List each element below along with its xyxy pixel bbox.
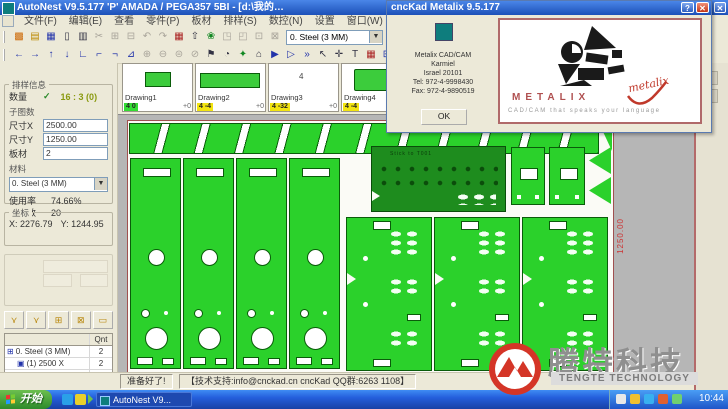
- toolbar-icon[interactable]: ▥: [75, 30, 91, 44]
- nest-actions: ⋎⋎⊞⊠▭: [4, 311, 113, 329]
- part-hole: [304, 327, 327, 350]
- size-x-input[interactable]: 2500.00: [43, 119, 108, 132]
- part-hole: [194, 309, 203, 318]
- thumbnail-name: Drawing1: [125, 93, 157, 102]
- row-qnt: 2: [89, 358, 112, 369]
- part-hole: [565, 230, 597, 257]
- part-hole: [461, 359, 479, 367]
- nested-part[interactable]: [183, 158, 234, 369]
- taskbar-clock: 10:44: [699, 393, 724, 404]
- metalix-tagline: CAD/CAM that speaks your language: [508, 108, 661, 114]
- part-hole: [407, 314, 421, 321]
- windows-flag-icon: [6, 395, 10, 399]
- part-hole: [565, 330, 597, 348]
- toolbar-icon[interactable]: ↷: [155, 30, 171, 44]
- group-title: 坐标: [9, 207, 32, 219]
- part-hole: [373, 221, 391, 230]
- disabled-input: [80, 274, 109, 287]
- taskbar: 开始 AutoNest V9... 10:44: [0, 390, 728, 409]
- toolbar-icon[interactable]: ▩: [11, 30, 27, 44]
- part-hole: [389, 278, 421, 296]
- menu-item[interactable]: 设置: [309, 15, 341, 28]
- part-hole: [520, 168, 538, 180]
- toolbar-icon[interactable]: ↓: [59, 48, 75, 62]
- part-hole: [270, 311, 274, 315]
- toolbar-icon[interactable]: ∟: [75, 48, 91, 62]
- disabled-options-group: [4, 254, 113, 306]
- part-label: Stick to T001: [390, 151, 432, 157]
- part-hole: [373, 359, 391, 367]
- system-tray: 10:44: [609, 390, 728, 409]
- toolbar-icon[interactable]: ⊖: [155, 48, 171, 62]
- part-hole: [583, 314, 597, 321]
- quicklaunch-desktop-icon[interactable]: [75, 394, 86, 405]
- table-row[interactable]: ▣(1) 2500 X 2: [5, 358, 112, 370]
- tray-icon[interactable]: [658, 394, 668, 404]
- about-dialog: cncKad Metalix 9.5.177 ? ✕ Metalix CAD/C…: [386, 0, 712, 133]
- material-label: 材料: [9, 163, 108, 175]
- task-label: AutoNest V9...: [113, 395, 171, 405]
- part-hole: [435, 273, 444, 285]
- menu-item[interactable]: 数控(N): [263, 15, 309, 28]
- toolbar-icon[interactable]: ⊿: [123, 48, 139, 62]
- menu-item[interactable]: 排样(S): [217, 15, 262, 28]
- metalix-logo-box: METALIX metalix CAD/CAM that speaks your…: [498, 18, 702, 124]
- subdrawings-label: 子图数: [9, 106, 108, 118]
- taskbar-task-autonest[interactable]: AutoNest V9...: [96, 392, 192, 407]
- row-qnt: 2: [89, 346, 112, 357]
- nest-action-button[interactable]: ▭: [93, 311, 113, 329]
- nested-part[interactable]: [236, 158, 287, 369]
- about-titlebar: cncKad Metalix 9.5.177 ? ✕: [387, 1, 711, 15]
- toolbar-icon[interactable]: ▷: [283, 48, 299, 62]
- nest-info-group: 排样信息 数量 ✓ 16 : 3 (0) 子图数 尺寸X2500.00 尺寸Y1…: [4, 84, 113, 204]
- part-hole: [477, 330, 509, 348]
- toolbar-grip[interactable]: [3, 31, 8, 43]
- sheets-label: 板材: [9, 147, 43, 160]
- window-title: AutoNest V9.5.177 'P' AMADA / PEGA357 5B…: [17, 0, 284, 15]
- part-hole: [296, 357, 312, 365]
- part-hole: [477, 230, 509, 257]
- row-icon[interactable]: ▣: [17, 359, 25, 368]
- material-combobox[interactable]: 0. Steel (3 MM)▼: [286, 30, 383, 45]
- part-hole: [575, 195, 579, 199]
- quantity-label: 数量: [9, 90, 43, 103]
- drawing-thumbnail[interactable]: 4 Drawing3 4 -32 +0: [268, 63, 339, 112]
- document-icon: [2, 15, 14, 27]
- nested-part[interactable]: [346, 217, 432, 371]
- thumbnail-preview: [123, 64, 192, 94]
- toolbar-icon[interactable]: ¬: [107, 48, 123, 62]
- toolbar-icon[interactable]: ⚑: [203, 48, 219, 62]
- table-header: Qnt: [5, 334, 112, 346]
- toolbar-icon[interactable]: ⊞: [107, 30, 123, 44]
- menu-item[interactable]: 查看: [108, 15, 140, 28]
- row-label: (1) 2500 X: [27, 359, 64, 368]
- part-hole: [215, 358, 227, 365]
- drawing-thumbnail[interactable]: Drawing1 4 0 +0: [122, 63, 193, 112]
- company-name: Metalix CAD/CAM: [393, 51, 493, 60]
- part-hole: [523, 273, 532, 285]
- material-combobox-value: 0. Steel (3 MM): [290, 32, 348, 42]
- toolbar-icon[interactable]: »: [299, 48, 315, 62]
- start-button[interactable]: 开始: [0, 390, 52, 409]
- nested-part[interactable]: [589, 177, 611, 204]
- task-icon: [100, 396, 110, 406]
- quantity-badge: 4 -4: [197, 103, 213, 111]
- part-hole: [549, 359, 567, 367]
- toolbar-icon[interactable]: ⊟: [123, 30, 139, 44]
- part-hole: [517, 195, 521, 199]
- size-y-label: 尺寸Y: [9, 133, 43, 146]
- close-button[interactable]: ✕: [714, 2, 726, 13]
- part-hole: [148, 249, 165, 266]
- part-hole: [323, 311, 327, 315]
- metalix-brand: METALIX: [512, 92, 590, 103]
- nested-part[interactable]: [130, 158, 181, 369]
- chevron-down-icon[interactable]: ▼: [369, 31, 382, 43]
- sheet[interactable]: Stick to T001: [127, 120, 614, 373]
- part-hole: [477, 278, 509, 296]
- toolbar-icon[interactable]: ▯: [59, 30, 75, 44]
- menu-item[interactable]: 零件(P): [140, 15, 185, 28]
- quantity-badge: 4 -4: [343, 103, 359, 111]
- part-hole: [190, 357, 206, 365]
- part-hole: [535, 195, 539, 199]
- nested-part[interactable]: [522, 217, 608, 371]
- extra-badge: +0: [256, 103, 264, 111]
- tray-icon[interactable]: [644, 394, 654, 404]
- toolbar-icon[interactable]: ↶: [139, 30, 155, 44]
- disabled-input: [43, 274, 72, 287]
- tray-icon[interactable]: [630, 394, 640, 404]
- menu-item[interactable]: 窗口(W): [341, 15, 389, 28]
- check-icon: ✓: [43, 91, 51, 102]
- part-hole: [243, 357, 259, 365]
- toolbar-icon[interactable]: ↑: [43, 48, 59, 62]
- part-hole: [451, 302, 456, 307]
- toolbar-icon[interactable]: ↖: [315, 48, 331, 62]
- part-hole: [451, 256, 456, 261]
- quantity-badge: 4 -32: [270, 103, 290, 111]
- nested-part[interactable]: [549, 147, 585, 205]
- toolbar-icon[interactable]: ▤: [27, 30, 43, 44]
- part-hole: [141, 309, 150, 318]
- part-hole: [321, 358, 333, 365]
- screen: AutoNest V9.5.177 'P' AMADA / PEGA357 5B…: [0, 0, 728, 409]
- chevron-down-icon[interactable]: ▼: [94, 178, 107, 190]
- toolbar-icon[interactable]: ⊡: [251, 30, 267, 44]
- part-hole: [162, 358, 174, 365]
- utilization-value: 74.66%: [51, 196, 82, 206]
- coord-y-label: Y:: [61, 219, 69, 229]
- cnckad-icon: [435, 23, 453, 41]
- close-icon[interactable]: ✕: [696, 2, 709, 13]
- size-y-input[interactable]: 1250.00: [43, 133, 108, 146]
- part-hole: [380, 179, 498, 188]
- row-icon[interactable]: ⊞: [7, 347, 14, 356]
- coord-x-label: X:: [9, 219, 18, 229]
- part-hole: [300, 309, 309, 318]
- company-country: Israel 20101: [393, 69, 493, 78]
- thumbnail-name: Drawing2: [198, 93, 230, 102]
- thumbnail-preview: 4: [269, 64, 338, 94]
- part-hole: [461, 221, 479, 230]
- part-hole: [145, 327, 168, 350]
- material-select-value: 0. Steel (3 MM): [12, 179, 67, 188]
- toolbar-icon[interactable]: ◔: [219, 48, 235, 62]
- toolbar-icon[interactable]: ▦: [43, 30, 59, 44]
- part-hole: [389, 330, 421, 348]
- toolbar-icon[interactable]: ❀: [203, 30, 219, 44]
- toolbar-icon[interactable]: ←: [11, 48, 27, 62]
- menu-item[interactable]: 编辑(E): [63, 15, 108, 28]
- nest-action-button[interactable]: ⊠: [71, 311, 91, 329]
- metalix-logo-icon: [500, 20, 700, 122]
- status-support: 【技术支持:info@cnckad.cn cncKad QQ群:6263 110…: [179, 374, 416, 389]
- toolbar-icon[interactable]: ▶: [267, 48, 283, 62]
- coord-x-value: 2276.79: [20, 219, 53, 229]
- status-ready: 准备好了!: [120, 374, 173, 389]
- nest-info-panel: 排样信息 数量 ✓ 16 : 3 (0) 子图数 尺寸X2500.00 尺寸Y1…: [0, 63, 118, 390]
- sheets-input[interactable]: 2: [43, 147, 108, 160]
- nest-action-button[interactable]: ⋎: [4, 311, 24, 329]
- table-row[interactable]: ⊞0. Steel (3 MM) 2: [5, 346, 112, 358]
- part-hole: [249, 168, 277, 177]
- part-hole: [201, 249, 218, 266]
- part-hole: [495, 314, 509, 321]
- coord-y-value: 1244.95: [71, 219, 104, 229]
- toolbar-icon[interactable]: ▦: [171, 30, 187, 44]
- quantity-badge: 4 0: [124, 103, 138, 111]
- thumbnail-name: Drawing3: [271, 93, 303, 102]
- nested-part[interactable]: [511, 147, 545, 205]
- part-hole: [254, 249, 271, 266]
- ok-button[interactable]: OK: [421, 109, 467, 125]
- part-hole: [555, 195, 559, 199]
- nested-part-selected[interactable]: Stick to T001: [371, 146, 506, 212]
- part-hole: [307, 249, 324, 266]
- toolbar-icon[interactable]: ▦: [363, 48, 379, 62]
- help-button[interactable]: ?: [681, 2, 694, 13]
- toolbar-icon[interactable]: ⊠: [267, 30, 283, 44]
- part-hole: [539, 256, 544, 261]
- toolbar-icon[interactable]: T: [347, 48, 363, 62]
- part-hole: [137, 357, 153, 365]
- nest-action-button[interactable]: ⊞: [48, 311, 68, 329]
- part-hole: [347, 273, 356, 285]
- toolbar-icon[interactable]: ✛: [331, 48, 347, 62]
- disabled-input: [43, 260, 108, 273]
- material-select[interactable]: 0. Steel (3 MM)▼: [9, 177, 108, 192]
- quicklaunch-ie-icon[interactable]: [62, 394, 73, 405]
- part-hole: [372, 191, 380, 201]
- toolbar-grip[interactable]: [3, 49, 8, 61]
- company-tel: Tel: 972-4-9998430: [393, 78, 493, 87]
- about-title: cncKad Metalix 9.5.177: [391, 2, 500, 13]
- quantity-value: 16 : 3 (0): [61, 92, 98, 102]
- nested-part[interactable]: [434, 217, 520, 371]
- part-hole: [164, 311, 168, 315]
- sheet-height-dimension: 1250.00: [616, 218, 625, 254]
- part-hole: [198, 327, 221, 350]
- drawing-thumbnail[interactable]: Drawing2 4 -4 +0: [195, 63, 266, 112]
- part-hole: [565, 278, 597, 296]
- toolbar-icon[interactable]: ⊘: [187, 48, 203, 62]
- tray-icon[interactable]: [672, 394, 682, 404]
- company-city: Karmiel: [393, 60, 493, 69]
- menu-item[interactable]: 文件(F): [18, 15, 63, 28]
- part-hole: [549, 221, 567, 230]
- quantity-row: 数量 ✓ 16 : 3 (0): [9, 90, 108, 103]
- part-hole: [247, 309, 256, 318]
- extra-badge: +0: [183, 103, 191, 111]
- thumbnail-name: Drawing4: [344, 93, 376, 102]
- part-hole: [539, 302, 544, 307]
- extra-badge: +0: [329, 103, 337, 111]
- toolbar-icon[interactable]: ✂: [91, 30, 107, 44]
- nested-part[interactable]: [289, 158, 340, 369]
- app-icon: [2, 2, 15, 15]
- nest-action-button[interactable]: ⋎: [26, 311, 46, 329]
- about-info: Metalix CAD/CAM Karmiel Israel 20101 Tel…: [393, 51, 493, 96]
- company-fax: Fax: 972-4-9890519: [393, 87, 493, 96]
- part-hole: [302, 168, 330, 177]
- row-label: 0. Steel (3 MM): [16, 347, 71, 356]
- start-label: 开始: [20, 393, 42, 405]
- toolbar-icon[interactable]: →: [27, 48, 43, 62]
- size-x-label: 尺寸X: [9, 119, 43, 132]
- part-hole: [143, 168, 171, 177]
- quicklaunch-media-icon[interactable]: [88, 394, 93, 404]
- coords-group: 坐标 X: 2276.79 Y: 1244.95: [4, 212, 113, 246]
- statusbar: 准备好了! 【技术支持:info@cnckad.cn cncKad QQ群:62…: [0, 372, 694, 391]
- part-hole: [363, 256, 368, 261]
- toolbar-icon[interactable]: ◰: [235, 30, 251, 44]
- toolbar-icon[interactable]: ⌐: [91, 48, 107, 62]
- thumbnail-preview: [196, 64, 265, 94]
- part-hole: [456, 193, 496, 205]
- toolbar-icon[interactable]: ⊕: [139, 48, 155, 62]
- toolbar-icon[interactable]: ⌂: [251, 48, 267, 62]
- toolbar-icon[interactable]: ⊜: [171, 48, 187, 62]
- part-hole: [251, 327, 274, 350]
- qnt-header: Qnt: [89, 334, 112, 345]
- part-hole: [196, 168, 224, 177]
- menu-item[interactable]: 板材: [185, 15, 217, 28]
- part-hole: [217, 311, 221, 315]
- thumbnail-preview-text: 4: [299, 72, 303, 81]
- group-title: 排样信息: [9, 79, 49, 91]
- tray-icon[interactable]: [616, 394, 626, 404]
- toolbar-icon[interactable]: ◳: [219, 30, 235, 44]
- toolbar-icon[interactable]: ✦: [235, 48, 251, 62]
- part-hole: [380, 165, 498, 174]
- nesting-canvas[interactable]: Stick to T001 1250.00: [118, 114, 694, 373]
- part-hole: [389, 230, 421, 257]
- part-hole: [268, 358, 280, 365]
- part-hole: [363, 302, 368, 307]
- toolbar-icon[interactable]: ⇧: [187, 30, 203, 44]
- part-hole: [560, 168, 578, 180]
